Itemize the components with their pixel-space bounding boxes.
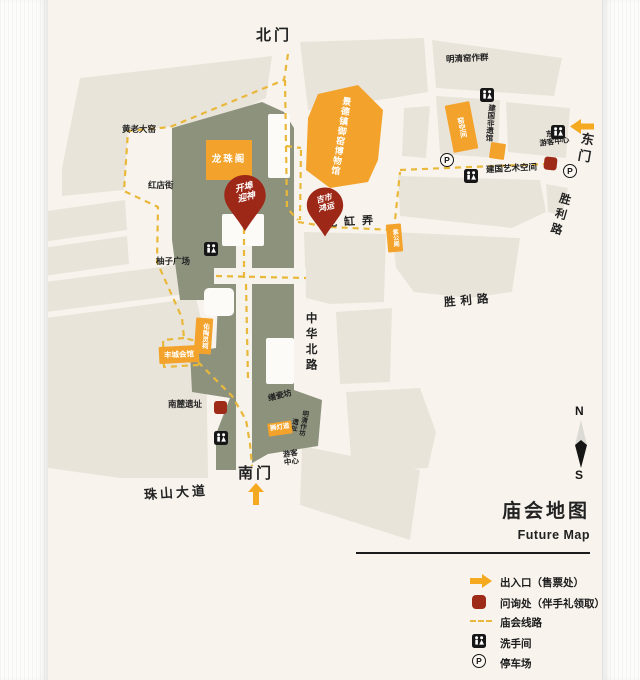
paper-texture-right [602, 0, 640, 680]
youzi-square-label: 柚子广场 [156, 257, 190, 266]
nanlu-ruins-label: 南麓遗址 [168, 400, 202, 409]
hongdian-street-label: 红店街 [148, 181, 174, 190]
huanglao-kiln-label: 黄老大窑 [122, 125, 156, 134]
south-gate-label: 南门 [238, 466, 274, 483]
legend-inquiry-label: 问询处（伴手礼领取） [500, 596, 605, 611]
compass-needle-icon [574, 420, 588, 473]
fengcheng-hall-building: 丰城会馆 [159, 345, 200, 364]
inquiry-point-marker [543, 156, 557, 170]
temple-fair-map-page: 北门 南门 东门 珠山大道 中华北路 胜利路 胜利路 龙 缸 弄 红店街 黄老大… [0, 0, 640, 680]
legend-entrance-label: 出入口（售票处） [500, 575, 584, 590]
legend-inquiry-icon [472, 595, 486, 609]
legend-divider [356, 552, 590, 554]
legend-parking-label: 停车场 [500, 656, 532, 671]
small-orange-building [489, 142, 506, 160]
restroom-icon [204, 242, 218, 256]
south-entrance-arrow-icon [248, 483, 264, 510]
legend-entrance-arrow-icon [470, 574, 492, 593]
restroom-icon [480, 88, 494, 102]
east-entrance-arrow-icon [570, 119, 594, 139]
compass-north-label: N [575, 404, 584, 418]
zhonghua-north-road-label: 中华北路 [304, 312, 317, 374]
legend-route-label: 庙会线路 [500, 615, 542, 630]
kaibu-yingshen-event-pin: 开埠 迎神 [222, 174, 268, 232]
inquiry-point-marker [214, 401, 227, 414]
parking-icon: P [440, 153, 454, 167]
map-title: 庙会地图 [390, 502, 590, 523]
zigong-pavilion-building: 紫公阁 [386, 223, 403, 252]
jishi-hongyun-event-pin: 吉市 鸿运 [305, 186, 345, 238]
map-subtitle: Future Map [390, 529, 590, 543]
legend-restroom-icon [472, 634, 486, 648]
restroom-icon [464, 169, 478, 183]
legend-parking-icon: P [472, 654, 486, 668]
compass-south-label: S [575, 468, 583, 482]
restroom-icon [214, 431, 228, 445]
legend-restroom-label: 洗手间 [500, 636, 532, 651]
restroom-icon [551, 125, 565, 139]
legend-route-dash-icon [470, 620, 492, 622]
parking-icon: P [563, 164, 577, 178]
north-gate-label: 北门 [256, 28, 292, 45]
paper-texture-left [0, 0, 48, 680]
